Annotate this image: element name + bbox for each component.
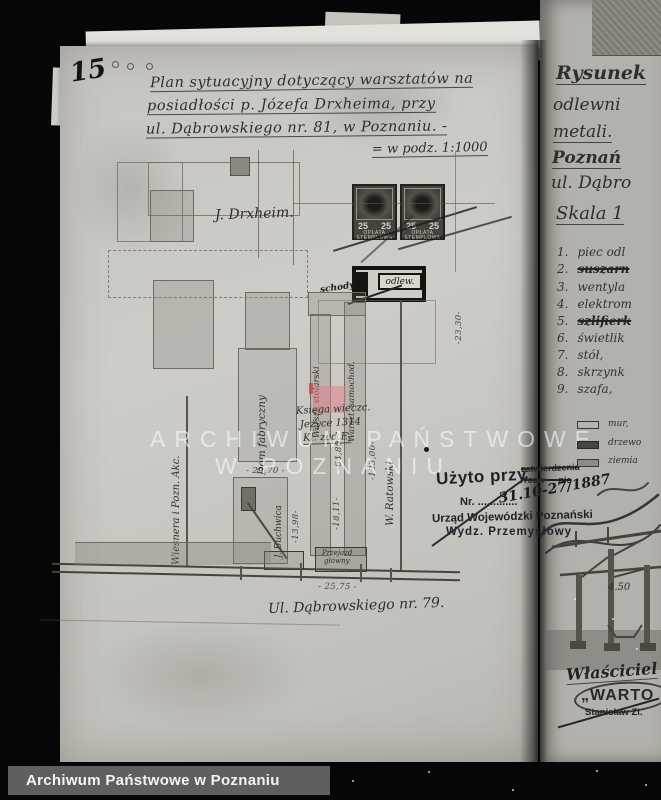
stamp-emblem-art: [356, 188, 393, 220]
gutter-shadow: [520, 40, 548, 762]
equipment-list-item: 7.stół,: [557, 348, 603, 362]
plan-small-dark-building: [230, 157, 250, 176]
archive-watermark-line2: W POZNANIU: [215, 453, 452, 480]
dust-speck: [352, 780, 354, 782]
legend-label-wood: drzewo: [608, 438, 641, 448]
paper-stain: [90, 620, 310, 730]
punch-dot: [112, 61, 119, 68]
archive-name-bar: Archiwum Państwowe w Poznaniu: [8, 766, 330, 795]
right-title-line3: metali.: [553, 122, 612, 143]
plan-label-passage1: Przejazd: [322, 549, 352, 557]
plan-dimension: -18,11-: [332, 492, 342, 530]
page-number: 15: [68, 53, 108, 88]
plan-label-neighbor-top: J. Drxheim.: [215, 205, 294, 224]
section-dimension: 4.50: [608, 582, 630, 593]
dust-speck: [512, 789, 514, 791]
plan-small-annex: [241, 487, 256, 511]
stamp-emblem-art: [404, 188, 441, 220]
scanned-archive-page: 15 Plan sytuacyjny dotyczący warsztatów …: [0, 0, 661, 800]
dust-speck: [612, 618, 614, 620]
dust-speck: [596, 770, 598, 772]
plan-foundry-label-box: odlew.: [378, 273, 422, 290]
legend-swatch-wall: [577, 421, 599, 429]
equipment-list-item: 8.skrzynk: [557, 365, 625, 379]
punch-dot: [127, 63, 134, 70]
equipment-list-item: 9.szafa,: [557, 382, 613, 396]
street-tick: [360, 564, 362, 582]
plan-boundary-left: [186, 396, 188, 566]
equipment-list-item: 2.suszarn: [557, 262, 629, 276]
revenue-stamp: 25 25 OPŁATA STEMPLOWA: [400, 184, 445, 240]
plan-dimension: -13,98-: [291, 505, 301, 543]
dust-speck: [574, 598, 576, 600]
plan-boundary-line: [293, 203, 495, 204]
dust-speck: [428, 771, 430, 773]
cross-section-drawing: [546, 525, 661, 670]
plan-building-shaded: [153, 280, 214, 369]
equipment-list-item: 6.świetlik: [557, 331, 625, 345]
plan-label-passage2: główny: [324, 557, 349, 565]
equipment-list-item: 1.piec odl: [557, 245, 625, 259]
usage-stamp-approval-word: zatwierdzenia: [521, 462, 580, 474]
textured-corner-block: [592, 0, 661, 56]
dust-speck: [645, 784, 647, 786]
equipment-list-item: 5.szlifierk: [557, 314, 631, 328]
street-tick: [300, 563, 302, 581]
street-tick: [390, 568, 392, 582]
plan-dimension: -23,30-: [454, 298, 464, 344]
plan-boundary-line: [258, 150, 259, 258]
equipment-list-item: 4.elektrom: [557, 297, 632, 311]
right-scale-label: Skala 1: [556, 203, 624, 225]
dust-speck: [636, 648, 638, 650]
document-scale-note: = w podz. 1:1000: [372, 140, 488, 158]
plan-dimension: - 25,75 -: [318, 582, 357, 593]
equipment-list-item: 3.wentyla: [557, 280, 625, 294]
document-title-line2: posiadłości p. Józefa Drxheima, przy: [147, 96, 436, 116]
punch-dot: [146, 63, 153, 70]
street-tick: [240, 566, 242, 580]
plan-boundary-line: [455, 152, 456, 272]
right-title-line1: Rysunek: [556, 62, 646, 85]
right-title-line5: ul. Dąbro: [551, 173, 631, 193]
archive-name-label: Archiwum Państwowe w Poznaniu: [26, 772, 280, 789]
plan-building-shaded: [245, 292, 290, 350]
plan-building-shaded: [150, 190, 194, 242]
legend-label-wall: mur,: [608, 419, 629, 429]
legend-label-earth: ziemia: [608, 456, 638, 466]
legend-swatch-wood: [577, 441, 599, 449]
legend-swatch-earth: [577, 459, 599, 467]
highlight-tick: [309, 383, 313, 394]
plan-shaded-strip: [75, 542, 271, 565]
right-title-line2: odlewni: [553, 95, 621, 115]
document-title-line3: ul. Dąbrowskiego nr. 81, w Poznaniu. -: [146, 118, 448, 138]
archive-watermark-line1: ARCHIWUM PAŃSTWOWE: [150, 426, 599, 453]
right-title-line4: Poznań: [552, 148, 621, 169]
